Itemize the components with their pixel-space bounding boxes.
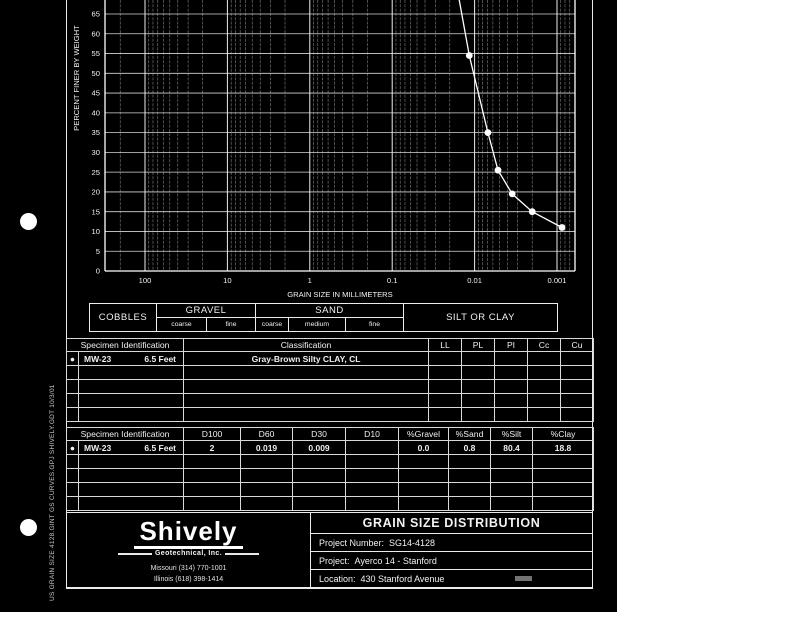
svg-text:30: 30 — [92, 148, 100, 157]
project-label: Project: — [319, 556, 350, 566]
gradation-table: Specimen Identification D100 D60 D30 D10… — [66, 427, 594, 511]
svg-text:20: 20 — [92, 188, 100, 197]
cu-value — [561, 352, 594, 366]
pl-value — [462, 352, 495, 366]
d10-value — [346, 441, 399, 455]
phone-missouri: Missouri (314) 770-1001 — [67, 564, 310, 575]
band-gravel: GRAVEL coarse fine — [157, 304, 256, 331]
classification-table: Specimen Identification Classification L… — [66, 338, 594, 422]
col-header-clay: %Clay — [533, 428, 594, 441]
location-value: 430 Stanford Avenue — [361, 574, 445, 584]
col-header-d100: D100 — [184, 428, 241, 441]
logo-rule-left — [118, 553, 152, 555]
specimen-classification: Gray-Brown Silty CLAY, CL — [184, 352, 429, 366]
col-header-sand: %Sand — [449, 428, 491, 441]
ll-value — [429, 352, 462, 366]
report-title: GRAIN SIZE DISTRIBUTION — [311, 513, 592, 534]
phone-illinois: Illinois (618) 398-1414 — [67, 575, 310, 586]
col-header-classification: Classification — [184, 339, 429, 352]
svg-text:35: 35 — [92, 128, 100, 137]
specimen-depth: 6.5 Feet — [144, 443, 176, 453]
svg-text:1: 1 — [308, 276, 312, 285]
clay-percent-value: 18.8 — [533, 441, 594, 455]
table-row-empty — [67, 455, 594, 469]
svg-text:10: 10 — [92, 227, 100, 236]
band-gravel-coarse: coarse — [157, 318, 207, 331]
col-header-silt: %Silt — [491, 428, 533, 441]
scanned-report-page: US GRAIN SIZE 4128.GINT GS CURVES.GPJ SH… — [0, 0, 800, 618]
d30-value: 0.009 — [293, 441, 346, 455]
table-row: ● MW-23 6.5 Feet 2 0.019 0.009 0.0 0.8 8… — [67, 441, 594, 455]
project-value: Ayerco 14 - Stanford — [355, 556, 437, 566]
report-info-block: GRAIN SIZE DISTRIBUTION Project Number: … — [311, 513, 592, 587]
svg-text:45: 45 — [92, 89, 100, 98]
svg-text:0: 0 — [96, 267, 100, 276]
col-header-ll: LL — [429, 339, 462, 352]
svg-text:0.01: 0.01 — [467, 276, 482, 285]
hole-punch-bottom — [20, 519, 37, 536]
location-label: Location: — [319, 574, 356, 584]
col-header-specimen: Specimen Identification — [67, 428, 184, 441]
specimen-id: MW-23 — [84, 354, 111, 364]
title-block: Shively Geotechnical, Inc. Missouri (314… — [66, 512, 593, 588]
band-sand-medium: medium — [289, 318, 346, 331]
logo-rule-right — [225, 553, 259, 555]
svg-text:50: 50 — [92, 69, 100, 78]
svg-text:15: 15 — [92, 207, 100, 216]
col-header-gravel: %Gravel — [399, 428, 449, 441]
col-header-specimen: Specimen Identification — [67, 339, 184, 352]
col-header-cu: Cu — [561, 339, 594, 352]
gravel-percent-value: 0.0 — [399, 441, 449, 455]
pi-value — [495, 352, 528, 366]
col-header-d30: D30 — [293, 428, 346, 441]
svg-text:40: 40 — [92, 108, 100, 117]
company-logo-block: Shively Geotechnical, Inc. Missouri (314… — [67, 513, 311, 587]
svg-text:0.001: 0.001 — [547, 276, 566, 285]
col-header-d60: D60 — [241, 428, 293, 441]
project-number-value: SG14-4128 — [389, 538, 435, 548]
specimen-marker-icon: ● — [67, 352, 79, 366]
form-bottom-border — [66, 588, 593, 589]
col-header-cc: Cc — [528, 339, 561, 352]
silt-percent-value: 80.4 — [491, 441, 533, 455]
table-row-empty — [67, 497, 594, 511]
table-row-empty — [67, 483, 594, 497]
grain-size-chart-svg: 051015202530354045505560651001010.10.010… — [66, 0, 593, 300]
d60-value: 0.019 — [241, 441, 293, 455]
svg-text:100: 100 — [139, 276, 152, 285]
svg-text:55: 55 — [92, 49, 100, 58]
band-gravel-fine: fine — [207, 318, 255, 331]
band-sand-coarse: coarse — [256, 318, 289, 331]
svg-text:60: 60 — [92, 29, 100, 38]
band-sand: SAND coarse medium fine — [256, 304, 404, 331]
company-tagline: Geotechnical, Inc. — [155, 550, 222, 557]
band-gravel-label: GRAVEL — [157, 304, 255, 318]
table-row-empty — [67, 408, 594, 422]
table-row: ● MW-23 6.5 Feet Gray-Brown Silty CLAY, … — [67, 352, 594, 366]
d100-value: 2 — [184, 441, 241, 455]
hole-punch-top — [20, 213, 37, 230]
band-sand-label: SAND — [256, 304, 403, 318]
svg-text:5: 5 — [96, 247, 100, 256]
svg-text:25: 25 — [92, 168, 100, 177]
project-number-label: Project Number: — [319, 538, 384, 548]
svg-text:0.1: 0.1 — [387, 276, 398, 285]
table-row-empty — [67, 469, 594, 483]
sidebar-filename-text: US GRAIN SIZE 4128.GINT GS CURVES.GPJ SH… — [49, 384, 56, 601]
specimen-marker-icon: ● — [67, 441, 79, 455]
col-header-pl: PL — [462, 339, 495, 352]
cc-value — [528, 352, 561, 366]
band-sand-fine: fine — [346, 318, 403, 331]
company-logo: Shively — [134, 518, 242, 549]
specimen-id: MW-23 — [84, 443, 111, 453]
particle-size-band: COBBLES GRAVEL coarse fine SAND coarse m… — [89, 303, 558, 332]
table-row-empty — [67, 380, 594, 394]
scan-smudge — [515, 576, 532, 581]
col-header-pi: PI — [495, 339, 528, 352]
svg-text:10: 10 — [223, 276, 231, 285]
table-row-empty — [67, 366, 594, 380]
table-row-empty — [67, 394, 594, 408]
band-cobbles: COBBLES — [90, 304, 157, 331]
specimen-depth: 6.5 Feet — [144, 354, 176, 364]
svg-text:PERCENT FINER BY WEIGHT: PERCENT FINER BY WEIGHT — [72, 25, 81, 131]
col-header-d10: D10 — [346, 428, 399, 441]
svg-text:65: 65 — [92, 10, 100, 19]
sand-percent-value: 0.8 — [449, 441, 491, 455]
band-silt-or-clay: SILT OR CLAY — [404, 304, 557, 331]
svg-text:GRAIN SIZE IN MILLIMETERS: GRAIN SIZE IN MILLIMETERS — [287, 290, 393, 299]
